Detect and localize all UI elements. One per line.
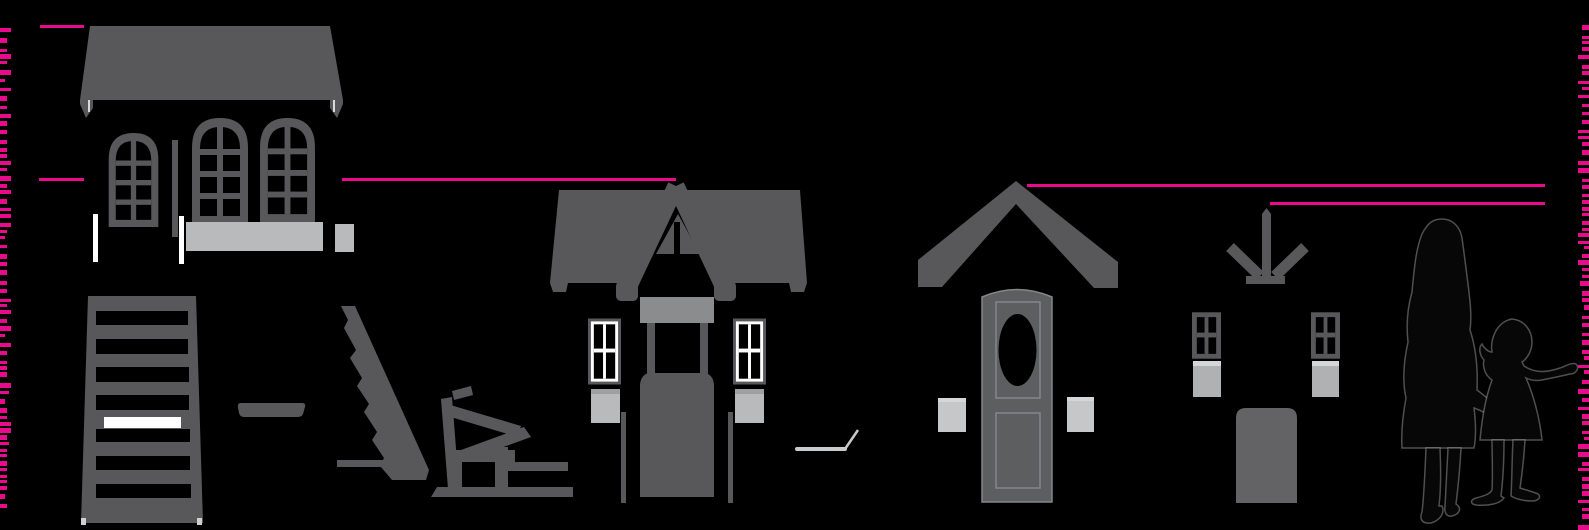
ruler-right-dash — [1582, 491, 1589, 496]
ruler-right-dash — [1582, 71, 1589, 75]
gable-vent-slot — [674, 222, 680, 254]
ruler-right-dash — [1578, 452, 1589, 457]
ruler-right-dash — [1578, 55, 1589, 59]
ruler-right-dash — [1578, 241, 1589, 244]
ruler-left-dash — [0, 106, 7, 109]
ruler-right-dash — [1582, 477, 1589, 481]
ramp-board — [341, 306, 429, 480]
ruler-right-dash — [1582, 414, 1589, 419]
ruler-left-dash — [0, 184, 7, 188]
ruler-right-dash — [1582, 142, 1589, 146]
stepped-ramp — [337, 306, 429, 480]
ruler-left-dash — [0, 351, 7, 355]
kit-window-left — [1192, 312, 1221, 358]
ruler-left-dash — [0, 281, 7, 285]
ruler-left-dash — [0, 289, 7, 293]
ruler-left-dash — [0, 28, 11, 32]
bench-side-rail — [500, 462, 568, 471]
door-edge-strip — [172, 140, 178, 237]
ruler-right-dash — [1582, 65, 1589, 69]
ruler-right-dash — [1582, 254, 1589, 258]
ruler-right-dash — [1582, 323, 1589, 327]
ruler-right-dash — [1582, 380, 1589, 384]
playhouse-medium — [550, 186, 807, 503]
side-rail-right — [728, 412, 733, 503]
eave-highlight-left — [88, 100, 90, 112]
white-post-left — [93, 214, 98, 262]
silhouette-scene — [0, 0, 1589, 530]
ruler-left-dash — [0, 208, 11, 211]
ruler-left-dash — [0, 343, 11, 347]
playhouse-large — [80, 26, 354, 264]
ruler-left-dash — [0, 334, 5, 337]
ruler-right-dash — [1582, 47, 1589, 51]
window-left — [588, 319, 621, 385]
kit-box-right — [1312, 361, 1339, 397]
ruler-right-dash — [1582, 221, 1589, 225]
ruler-left-dash — [0, 454, 7, 457]
ruler-left-dash — [0, 449, 7, 452]
ruler-left-dash — [0, 190, 11, 194]
ruler-right-dash — [1578, 407, 1589, 410]
ruler-right-dash — [1582, 185, 1589, 189]
ladder-white-slat — [104, 417, 181, 428]
ruler-left-dash — [0, 161, 11, 165]
ruler-left-dash — [0, 262, 7, 266]
side-box-left — [938, 398, 966, 432]
ladder-foot-left — [81, 518, 86, 525]
ruler-right-dash — [1582, 87, 1589, 90]
gable-foot-left — [616, 281, 638, 301]
ruler-right-dash — [1582, 514, 1589, 519]
ruler-right-dash — [1582, 421, 1589, 425]
porch-roof-left — [918, 181, 1016, 287]
ruler-right-dash — [1582, 200, 1589, 204]
roof-eave-right — [330, 100, 343, 118]
roof-eave-left — [550, 283, 568, 292]
ruler-right-dash — [1582, 104, 1589, 107]
ruler-right-dash — [1582, 291, 1589, 296]
ruler-right-dash — [1578, 161, 1589, 165]
ruler-right-dash — [1578, 260, 1589, 265]
ruler-left-dash — [0, 475, 7, 478]
ruler-left-dash — [0, 326, 11, 331]
ruler-left-dash — [0, 270, 7, 275]
ruler-right-dash — [1582, 112, 1589, 115]
ruler-right-dash — [1578, 168, 1589, 173]
ruler-left-dash — [0, 461, 7, 466]
ruler-left-dash — [0, 236, 5, 239]
slat-ladder — [81, 296, 203, 525]
ruler-right-dash — [1578, 444, 1589, 449]
flower-box-right-shade — [735, 389, 764, 394]
roof — [80, 26, 343, 100]
porch-header — [640, 297, 714, 323]
ruler-left-dash — [0, 61, 7, 64]
ruler-left-dash — [0, 130, 7, 134]
ruler-right-dash — [1582, 333, 1589, 336]
ruler-right-dash — [1582, 462, 1589, 466]
ruler-left-dash — [0, 494, 5, 499]
ruler-left-dash — [0, 422, 11, 426]
ruler-left-dash — [0, 214, 11, 218]
size-comparison-diagram — [0, 0, 1589, 530]
shelf-board — [238, 403, 305, 417]
base-block — [335, 224, 354, 252]
ruler-right-dash — [1584, 370, 1589, 374]
arched-window-right — [260, 118, 315, 222]
ruler-left-dash — [0, 154, 7, 158]
ruler-left-dash — [0, 383, 11, 388]
side-box-right — [1067, 397, 1094, 432]
ruler-right-dash — [1578, 136, 1589, 139]
ruler-left-dash — [0, 428, 11, 433]
kit-box-right-top — [1312, 361, 1339, 366]
ruler-left-dash — [0, 223, 11, 227]
ruler-right-dash — [1584, 305, 1589, 310]
ruler-left-dash — [0, 121, 7, 126]
ruler-left-dash — [0, 49, 7, 52]
ruler-left-dash — [0, 70, 11, 75]
porch-door-unit — [918, 181, 1118, 502]
ruler-right-dash — [1582, 398, 1589, 402]
gable-foot-right — [714, 281, 736, 301]
ruler-left-dash — [0, 391, 9, 394]
ruler-right-dash — [1578, 525, 1589, 530]
ruler-left-dash — [0, 416, 7, 419]
height-line-porch-door — [1027, 184, 1545, 187]
ruler-right-dash — [1582, 213, 1589, 216]
ruler-right-dash — [1582, 275, 1589, 278]
ruler-left-dash — [0, 79, 5, 82]
ruler-right-dash — [1582, 25, 1589, 30]
ruler-right-dash — [1582, 340, 1589, 345]
kit-box-left-top — [1193, 361, 1221, 366]
arrow-kit — [1192, 208, 1340, 503]
ruler-left-dash — [0, 480, 7, 483]
ruler-right-dash — [1578, 233, 1589, 237]
ruler-left-dash — [0, 435, 7, 440]
ruler-right-dash — [1582, 36, 1589, 39]
ruler-left-dash — [0, 319, 7, 323]
kit-door — [1236, 408, 1297, 503]
ruler-right-dash — [1582, 350, 1589, 354]
ruler-right-dash — [1582, 120, 1589, 124]
ruler-left-dash — [0, 504, 7, 508]
bench-base-board — [431, 487, 573, 497]
ruler-right-dash — [1582, 41, 1589, 44]
flower-box-left-shade — [591, 389, 620, 394]
ruler-left-dash — [0, 366, 7, 370]
ruler-right-dash — [1584, 356, 1589, 360]
window-right — [733, 319, 766, 385]
side-box-left-top — [938, 398, 966, 402]
ruler-right-dash — [1582, 150, 1589, 155]
bench-rear-leg — [452, 450, 462, 492]
side-box-right-top — [1067, 397, 1094, 401]
ruler-left-dash — [0, 54, 11, 59]
door-oval-window — [999, 314, 1037, 386]
ladder-foot-right — [197, 518, 202, 525]
ruler-right-dash — [1582, 484, 1589, 489]
ruler-right-dash — [1582, 508, 1589, 511]
arched-window-middle — [192, 118, 248, 224]
arched-window-left — [109, 133, 159, 227]
ruler-right-dash — [1584, 246, 1589, 249]
kit-window-right — [1311, 312, 1340, 358]
ruler-right-dash — [1582, 207, 1589, 211]
flower-box-right — [735, 389, 764, 423]
height-line-playhouse-medium — [39, 178, 84, 181]
ruler-right-dash — [1582, 268, 1589, 271]
kit-box-left — [1193, 361, 1221, 397]
ruler-left-dash — [0, 299, 11, 302]
porch-roof-right — [1016, 181, 1118, 288]
ruler-right-dash — [1578, 130, 1589, 133]
height-line-playhouse-medium — [342, 178, 676, 181]
ruler-right-dash — [1582, 228, 1589, 231]
flower-box-left — [591, 389, 620, 423]
door-post-right — [700, 323, 708, 375]
ruler-right-dash — [1582, 431, 1589, 434]
ruler-left-dash — [0, 199, 7, 204]
ruler-right-dash — [1584, 437, 1589, 440]
ruler-left-dash — [0, 88, 11, 91]
ruler-right-dash — [1578, 81, 1589, 84]
height-line-arrow-kit — [1270, 202, 1545, 205]
ruler-left-dash — [0, 96, 7, 101]
baseboard — [186, 222, 323, 251]
down-arrow — [1230, 208, 1305, 284]
garden-bench — [431, 386, 573, 497]
ruler-right-dash — [1578, 468, 1589, 471]
child-silhouette — [1472, 319, 1578, 505]
ruler-right-dash — [1578, 365, 1589, 368]
eave-highlight-right — [333, 100, 335, 112]
bench-back-cap — [452, 386, 473, 400]
ruler-right-dash — [1578, 389, 1589, 394]
ruler-left-dash — [0, 254, 7, 259]
ruler-left-dash — [0, 176, 11, 181]
ruler-left-dash — [0, 114, 11, 118]
ruler-left-dash — [0, 168, 7, 171]
ruler-left-dash — [0, 310, 11, 314]
ruler-left-dash — [0, 468, 7, 471]
roof-eave-right — [789, 283, 807, 292]
white-post-right — [179, 216, 184, 264]
ruler-right-dash — [1580, 281, 1589, 286]
side-rail-left — [621, 412, 626, 503]
ruler-right-dash — [1578, 500, 1589, 503]
ladder-gaps — [96, 311, 191, 498]
roof-eave-left — [80, 100, 93, 118]
ruler-left-dash — [0, 442, 9, 445]
ruler-left-dash — [0, 372, 7, 377]
ruler-right-dash — [1582, 298, 1589, 302]
bench-back-board — [444, 404, 521, 437]
height-line-playhouse-large — [40, 25, 84, 28]
ruler-right-dash — [1582, 316, 1589, 319]
ruler-left-dash — [0, 486, 7, 490]
ruler-left-dash — [0, 140, 7, 144]
ruler-left-dash — [0, 230, 7, 233]
ruler-left-dash — [0, 399, 5, 404]
ruler-left-dash — [0, 361, 7, 364]
door — [640, 373, 714, 497]
door-post-left — [647, 323, 655, 375]
ruler-left-dash — [0, 148, 7, 152]
ruler-right-dash — [1578, 95, 1589, 98]
ruler-left-dash — [0, 38, 7, 43]
garden-stick — [795, 430, 858, 451]
ruler-right-dash — [1582, 194, 1589, 197]
ruler-left-dash — [0, 245, 7, 248]
ruler-right-dash — [1582, 179, 1589, 182]
ruler-left-dash — [0, 408, 7, 413]
ruler-left-dash — [0, 304, 7, 307]
